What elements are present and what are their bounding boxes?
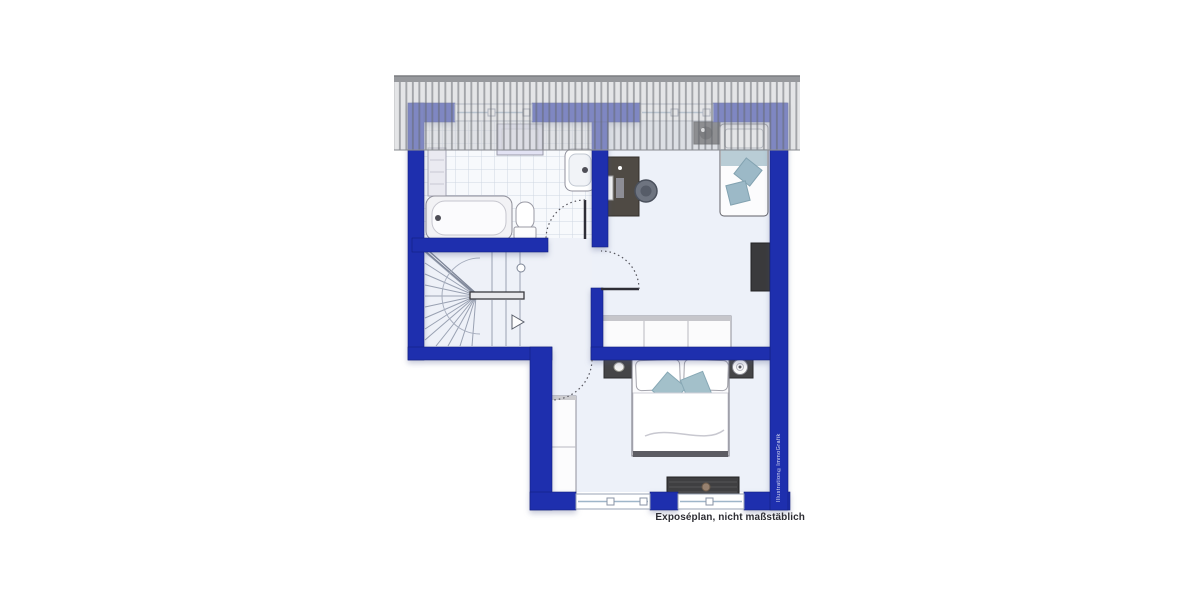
bottom-wall-segment [530, 492, 576, 510]
stair-newel-post [517, 264, 525, 272]
roof-overhang [394, 76, 800, 150]
wall-shelf [751, 243, 770, 291]
wardrobe-study [601, 316, 731, 348]
bedroom-left-wall [530, 347, 552, 510]
bedroom-top-wall [591, 347, 770, 360]
double-bed [632, 357, 729, 457]
knob-icon [702, 483, 710, 491]
bottom-wall-segment [650, 492, 678, 510]
bathroom-bottom-wall [412, 238, 548, 252]
bed-footboard [633, 451, 728, 457]
toilet [514, 202, 536, 239]
office-chair [635, 180, 657, 202]
roof-ridge-edge [394, 76, 800, 82]
floorplan-graphic [0, 0, 1200, 600]
bathtub [426, 196, 512, 240]
plan-caption: Exposéplan, nicht maßstäblich [545, 512, 805, 523]
duvet [633, 393, 728, 452]
hallway-floor [548, 238, 592, 360]
bathtub-faucet [435, 215, 441, 221]
stair-handrail [470, 292, 524, 299]
radiator [428, 148, 446, 196]
window-bedroom-left [576, 494, 650, 509]
lamp-icon [614, 363, 624, 372]
illustrator-watermark: Illustration©ImmoGrafik [772, 426, 787, 510]
sink-faucet [582, 167, 588, 173]
sink [565, 149, 595, 191]
window-bedroom-right [678, 494, 744, 509]
floorplan-canvas: Exposéplan, nicht maßstäblich Illustrati… [0, 0, 1200, 600]
desk-papers [616, 178, 624, 198]
wardrobe-bedroom [549, 396, 576, 497]
